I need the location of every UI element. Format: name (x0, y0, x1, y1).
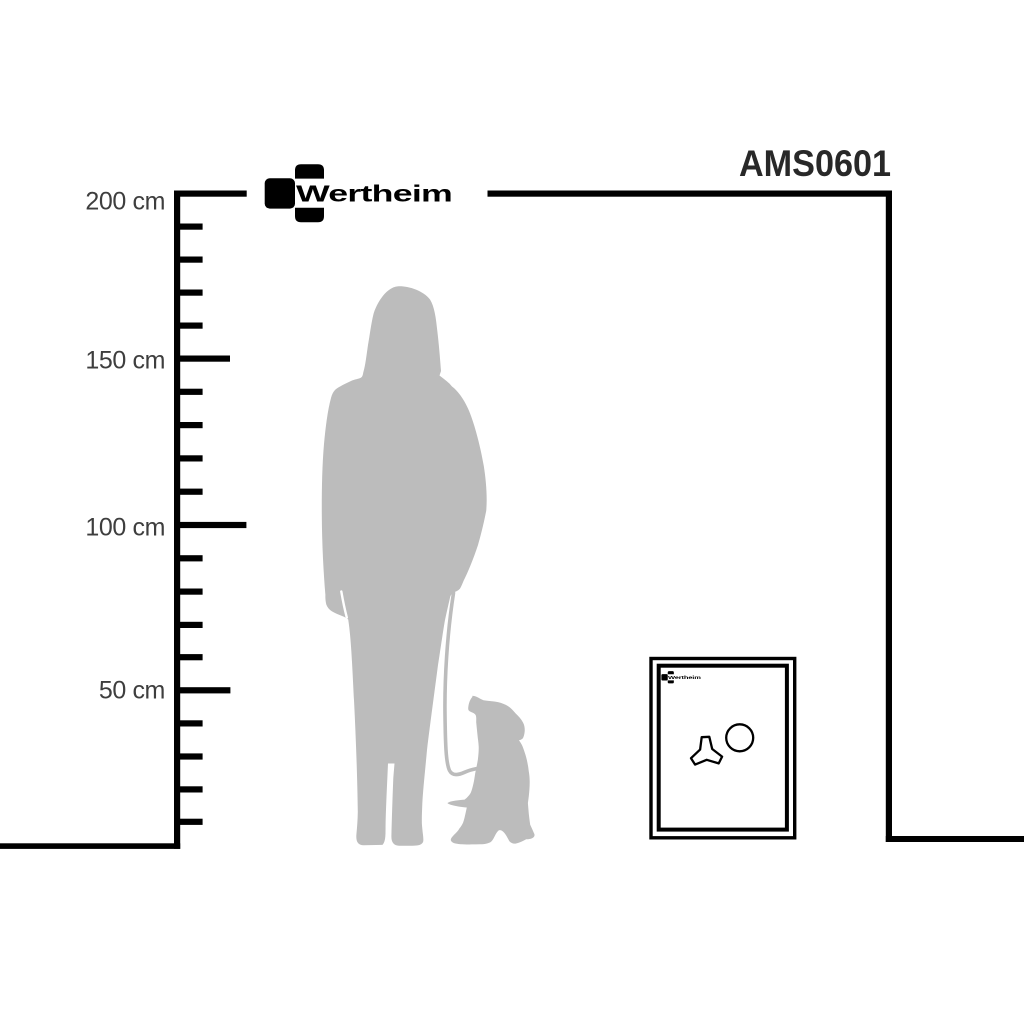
svg-text:200 cm: 200 cm (85, 188, 165, 216)
svg-text:AMS0601: AMS0601 (739, 143, 891, 184)
svg-text:Wertheim: Wertheim (296, 180, 452, 206)
svg-text:50 cm: 50 cm (99, 677, 165, 705)
svg-text:100 cm: 100 cm (85, 514, 165, 542)
svg-text:150 cm: 150 cm (85, 347, 165, 375)
